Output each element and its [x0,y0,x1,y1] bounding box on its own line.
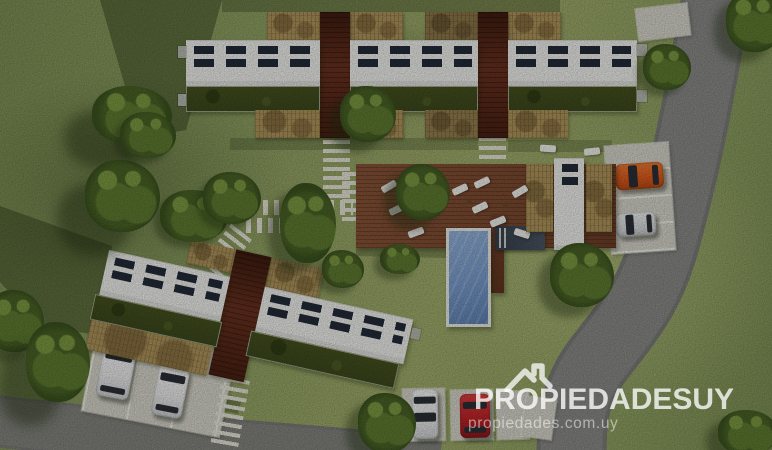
row1-pergola [425,110,478,138]
swimming-pool [446,228,491,327]
row1-pergola [425,12,478,40]
row1-unit-roof [186,40,320,86]
row1-pergola [267,12,320,40]
tree [380,244,420,274]
clubhouse-pergola [526,164,553,232]
row1-green-roof [508,86,637,112]
tree [85,160,160,232]
tree [26,322,90,402]
stepping-stones [342,172,356,226]
roof-vent [637,90,647,102]
tree [120,112,176,158]
tree [396,164,450,220]
roof-vent [178,46,186,58]
watermark-website: propiedades.com.uy [468,415,618,433]
aerial-render: PROPIEDADESUY propiedades.com.uy [0,0,772,450]
roof-vent [178,94,186,106]
tree [340,86,396,142]
watermark-brand: PROPIEDADESUY [474,383,734,417]
tree [643,44,691,90]
row1-courtyard-deck [478,12,508,138]
side-table [467,199,472,204]
clubhouse-pergola [586,164,612,232]
side-table [503,202,508,207]
row1-pergola [350,12,403,40]
car-orange [615,161,665,190]
car-white-van [412,388,439,438]
tree [358,393,416,450]
parking-pad-top-right [635,3,691,41]
car-silver [615,211,657,238]
tree [280,183,336,263]
row1-unit-roof [350,40,478,86]
row1-green-roof [186,86,320,112]
building-shadow [222,0,560,12]
tree [550,243,614,307]
row1-unit-roof [508,40,637,86]
building-shadow [230,138,478,150]
tree [203,172,261,224]
row1-pergola [255,110,320,138]
row1-pergola [508,12,561,40]
row1-pergola [508,110,568,138]
tree [322,250,364,288]
clubhouse-roof [554,158,584,250]
sun-lounger [540,144,556,152]
